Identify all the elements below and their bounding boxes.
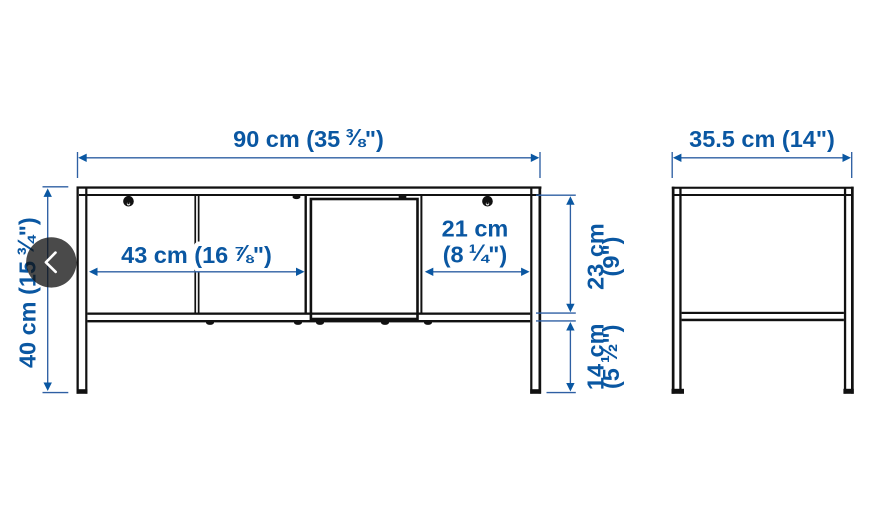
- svg-text:35.5 cm (14"): 35.5 cm (14"): [689, 126, 835, 152]
- svg-text:43 cm (16 ⅞"): 43 cm (16 ⅞"): [121, 240, 272, 268]
- svg-text:40 cm (15 ¾"): 40 cm (15 ¾"): [13, 217, 41, 368]
- svg-text:(5 ½"): (5 ½"): [596, 325, 624, 390]
- svg-text:90 cm (35 ⅜"): 90 cm (35 ⅜"): [233, 124, 384, 152]
- svg-text:21 cm: 21 cm: [442, 216, 509, 242]
- svg-text:(9"): (9"): [598, 237, 624, 277]
- svg-text:(8 ¼"): (8 ¼"): [443, 240, 508, 268]
